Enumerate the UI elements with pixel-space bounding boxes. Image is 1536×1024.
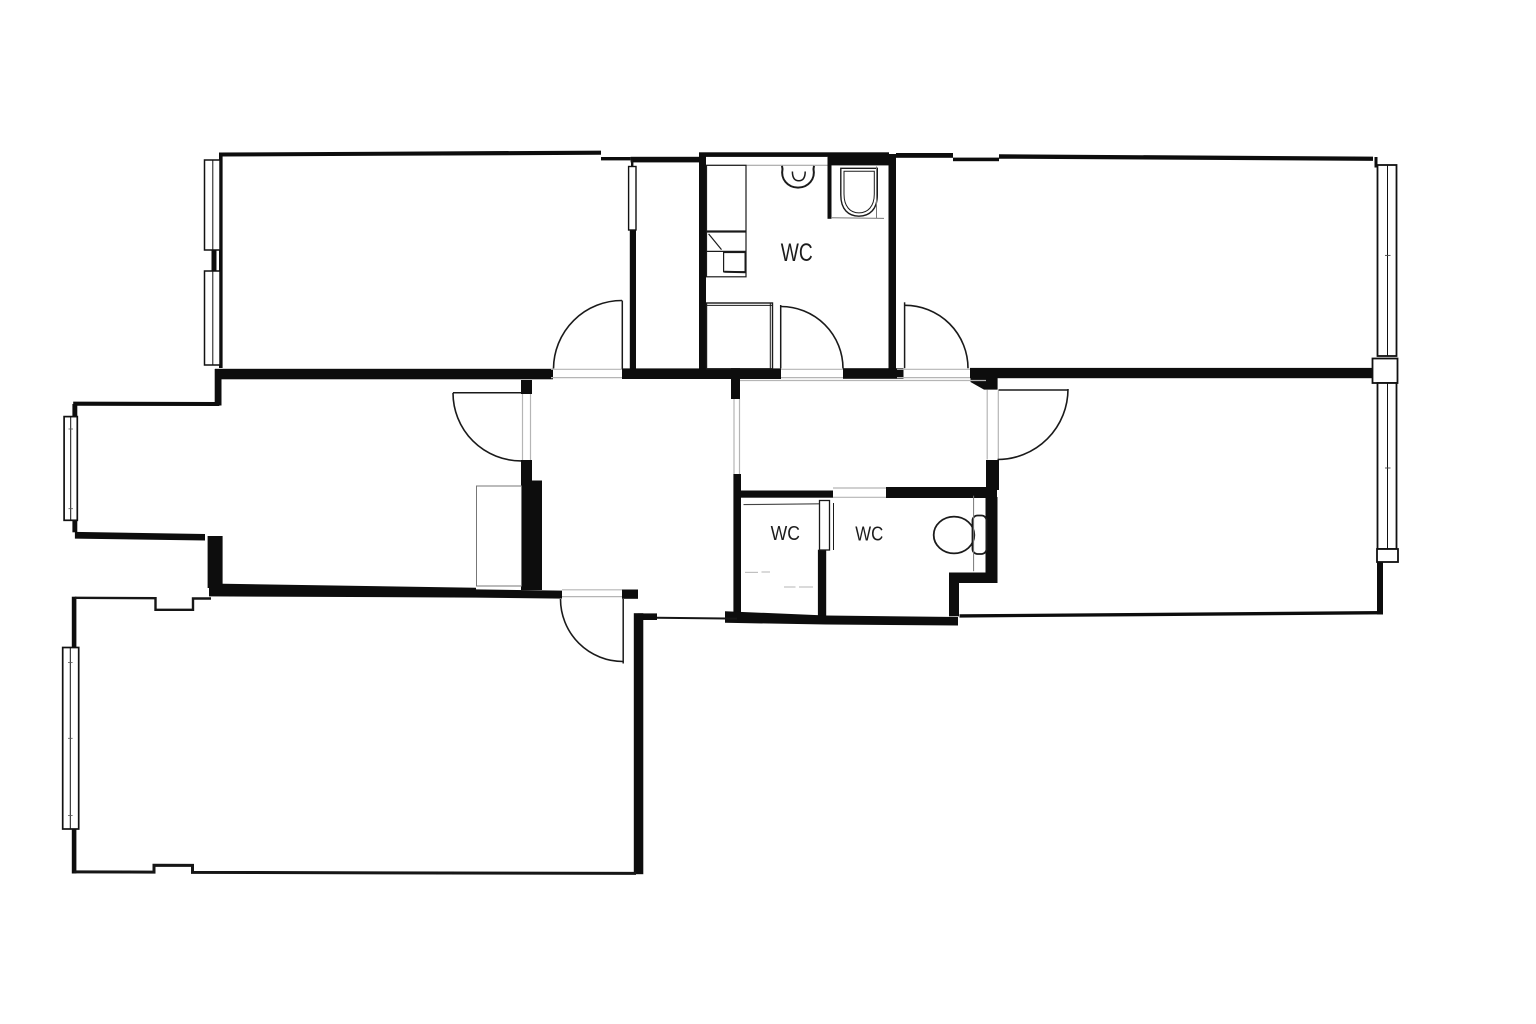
- svg-text:WC: WC: [781, 239, 813, 267]
- svg-text:WC: WC: [855, 523, 883, 546]
- svg-text:WC: WC: [771, 522, 800, 545]
